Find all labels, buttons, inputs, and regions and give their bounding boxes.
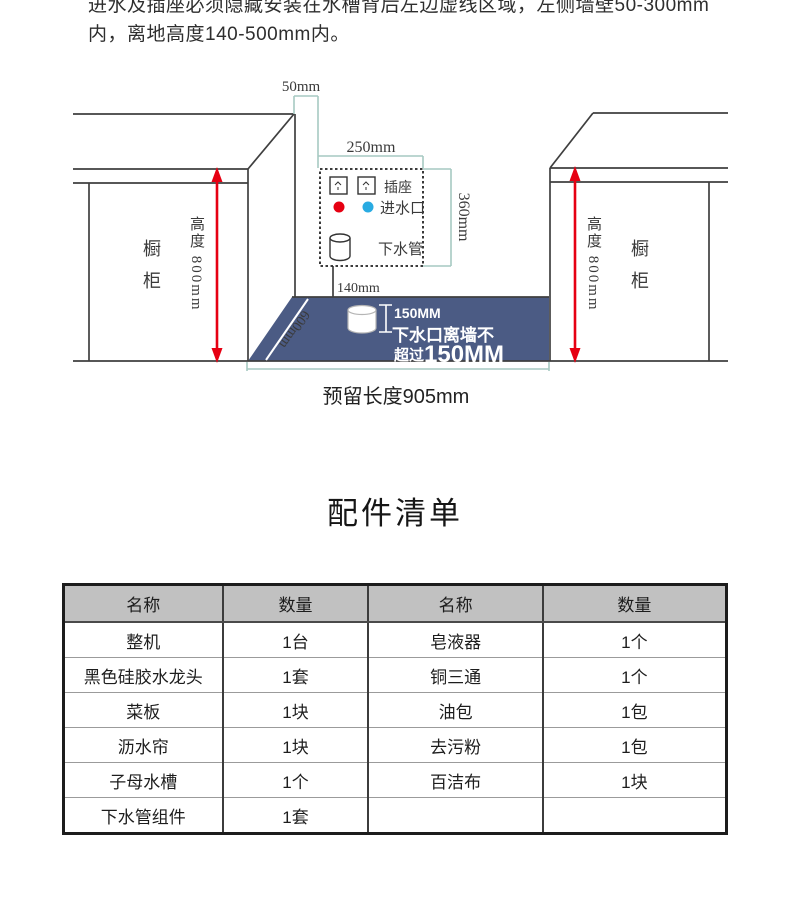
page: { "note": { "line1": "进水及插座必须隐藏安装在水槽背后左边… (0, 0, 790, 904)
cold-water-dot (363, 202, 374, 213)
right-cabinet-label: 橱柜 (626, 239, 652, 303)
parts-list-title: 配件清单 (0, 495, 790, 532)
reserved-length-label: 预留长度905mm (323, 385, 470, 408)
part-name (368, 798, 542, 834)
drain-pipe-icon (330, 234, 350, 261)
note-line-1: 进水及插座必须隐藏安装在水槽背后左边虚线区域，左侧墙壁50-300mm (88, 0, 744, 20)
left-cabinet-label: 橱柜 (138, 239, 164, 303)
col-header-qty: 数量 (543, 585, 727, 623)
col-header-name: 名称 (64, 585, 223, 623)
inlet-label: 进水口 (380, 200, 425, 217)
hot-water-dot (334, 202, 345, 213)
part-qty: 1块 (223, 728, 369, 763)
dim-140mm: 140mm (337, 281, 380, 296)
part-qty: 1个 (543, 622, 727, 658)
drain-outlet-icon (348, 305, 392, 333)
socket-label: 插座 (384, 180, 412, 196)
left-height-label: 高度 800mm (186, 216, 207, 312)
drain-note-line2-small: 超过 (393, 346, 424, 364)
parts-table-wrap: 名称 数量 名称 数量 整机 1台 皂液器 1个 黑色硅胶水龙头 1套 铜三通 … (62, 583, 728, 835)
table-row: 整机 1台 皂液器 1个 (64, 622, 727, 658)
table-header-row: 名称 数量 名称 数量 (64, 585, 727, 623)
part-name: 沥水帘 (64, 728, 223, 763)
part-qty: 1块 (223, 693, 369, 728)
dim-360mm: 360mm (455, 193, 472, 242)
diagram-svg: 600mm 50mm 250mm 360mm 140mm 插座 进水口 下水管 … (0, 49, 790, 469)
col-header-qty: 数量 (223, 585, 369, 623)
note-line-2: 内，离地高度140-500mm内。 (88, 20, 744, 49)
part-qty: 1包 (543, 693, 727, 728)
table-row: 沥水帘 1块 去污粉 1包 (64, 728, 727, 763)
part-qty: 1套 (223, 658, 369, 693)
parts-table: 名称 数量 名称 数量 整机 1台 皂液器 1个 黑色硅胶水龙头 1套 铜三通 … (62, 583, 728, 835)
dim-50mm: 50mm (282, 79, 321, 95)
installation-diagram: 600mm 50mm 250mm 360mm 140mm 插座 进水口 下水管 … (0, 49, 790, 469)
part-qty: 1台 (223, 622, 369, 658)
part-name: 子母水槽 (64, 763, 223, 798)
part-qty: 1个 (543, 658, 727, 693)
part-qty (543, 798, 727, 834)
drain-note-line2-big: 150MM (424, 341, 504, 368)
part-name: 百洁布 (368, 763, 542, 798)
part-name: 整机 (64, 622, 223, 658)
part-qty: 1包 (543, 728, 727, 763)
part-qty: 1块 (543, 763, 727, 798)
part-name: 铜三通 (368, 658, 542, 693)
part-name: 黑色硅胶水龙头 (64, 658, 223, 693)
col-header-name: 名称 (368, 585, 542, 623)
installation-note: 进水及插座必须隐藏安装在水槽背后左边虚线区域，左侧墙壁50-300mm 内，离地… (0, 0, 790, 49)
part-name: 皂液器 (368, 622, 542, 658)
dim-250mm: 250mm (347, 139, 396, 156)
part-qty: 1套 (223, 798, 369, 834)
right-height-label: 高度 800mm (583, 216, 604, 312)
part-qty: 1个 (223, 763, 369, 798)
table-row: 子母水槽 1个 百洁布 1块 (64, 763, 727, 798)
table-row: 黑色硅胶水龙头 1套 铜三通 1个 (64, 658, 727, 693)
part-name: 下水管组件 (64, 798, 223, 834)
table-row: 下水管组件 1套 (64, 798, 727, 834)
table-row: 菜板 1块 油包 1包 (64, 693, 727, 728)
socket-icons (330, 177, 375, 194)
drain-dim-label: 150MM (394, 305, 441, 321)
part-name: 油包 (368, 693, 542, 728)
part-name: 去污粉 (368, 728, 542, 763)
drain-pipe-label: 下水管 (378, 241, 423, 258)
part-name: 菜板 (64, 693, 223, 728)
